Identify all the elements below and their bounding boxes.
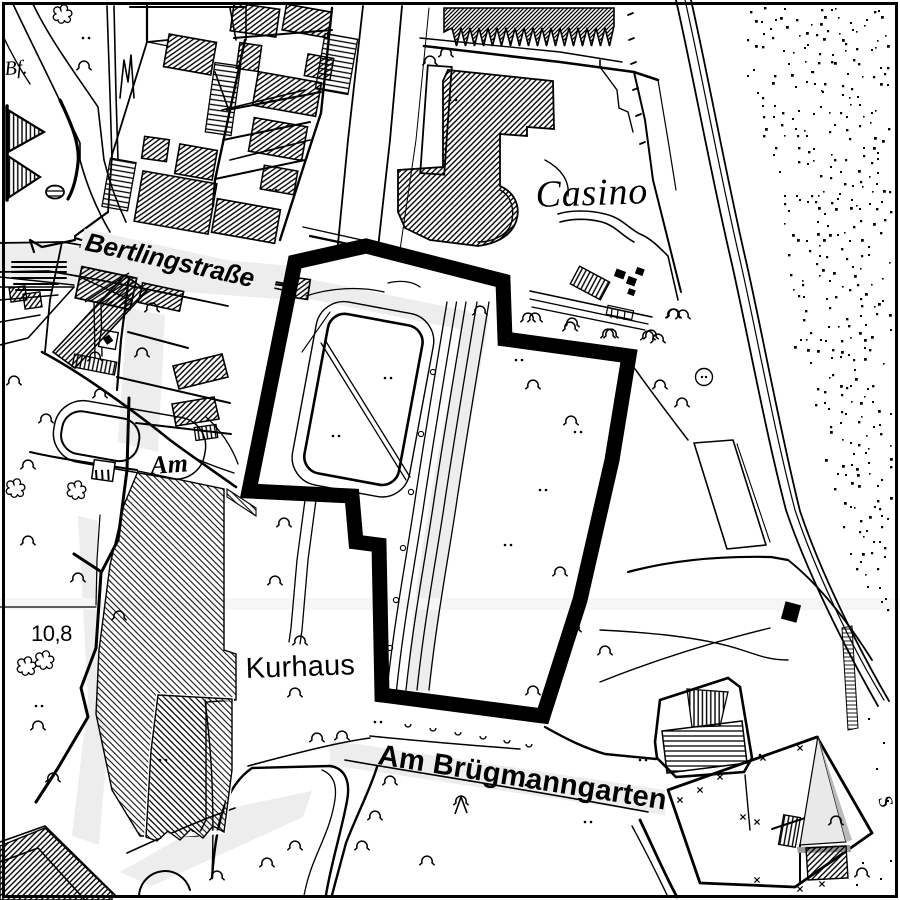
svg-text:Bf.: Bf. <box>4 56 28 80</box>
svg-text:Am: Am <box>147 448 189 480</box>
svg-text:10,8: 10,8 <box>31 621 72 646</box>
svg-text:Casino: Casino <box>535 170 649 216</box>
svg-text:Kurhaus: Kurhaus <box>245 649 355 685</box>
